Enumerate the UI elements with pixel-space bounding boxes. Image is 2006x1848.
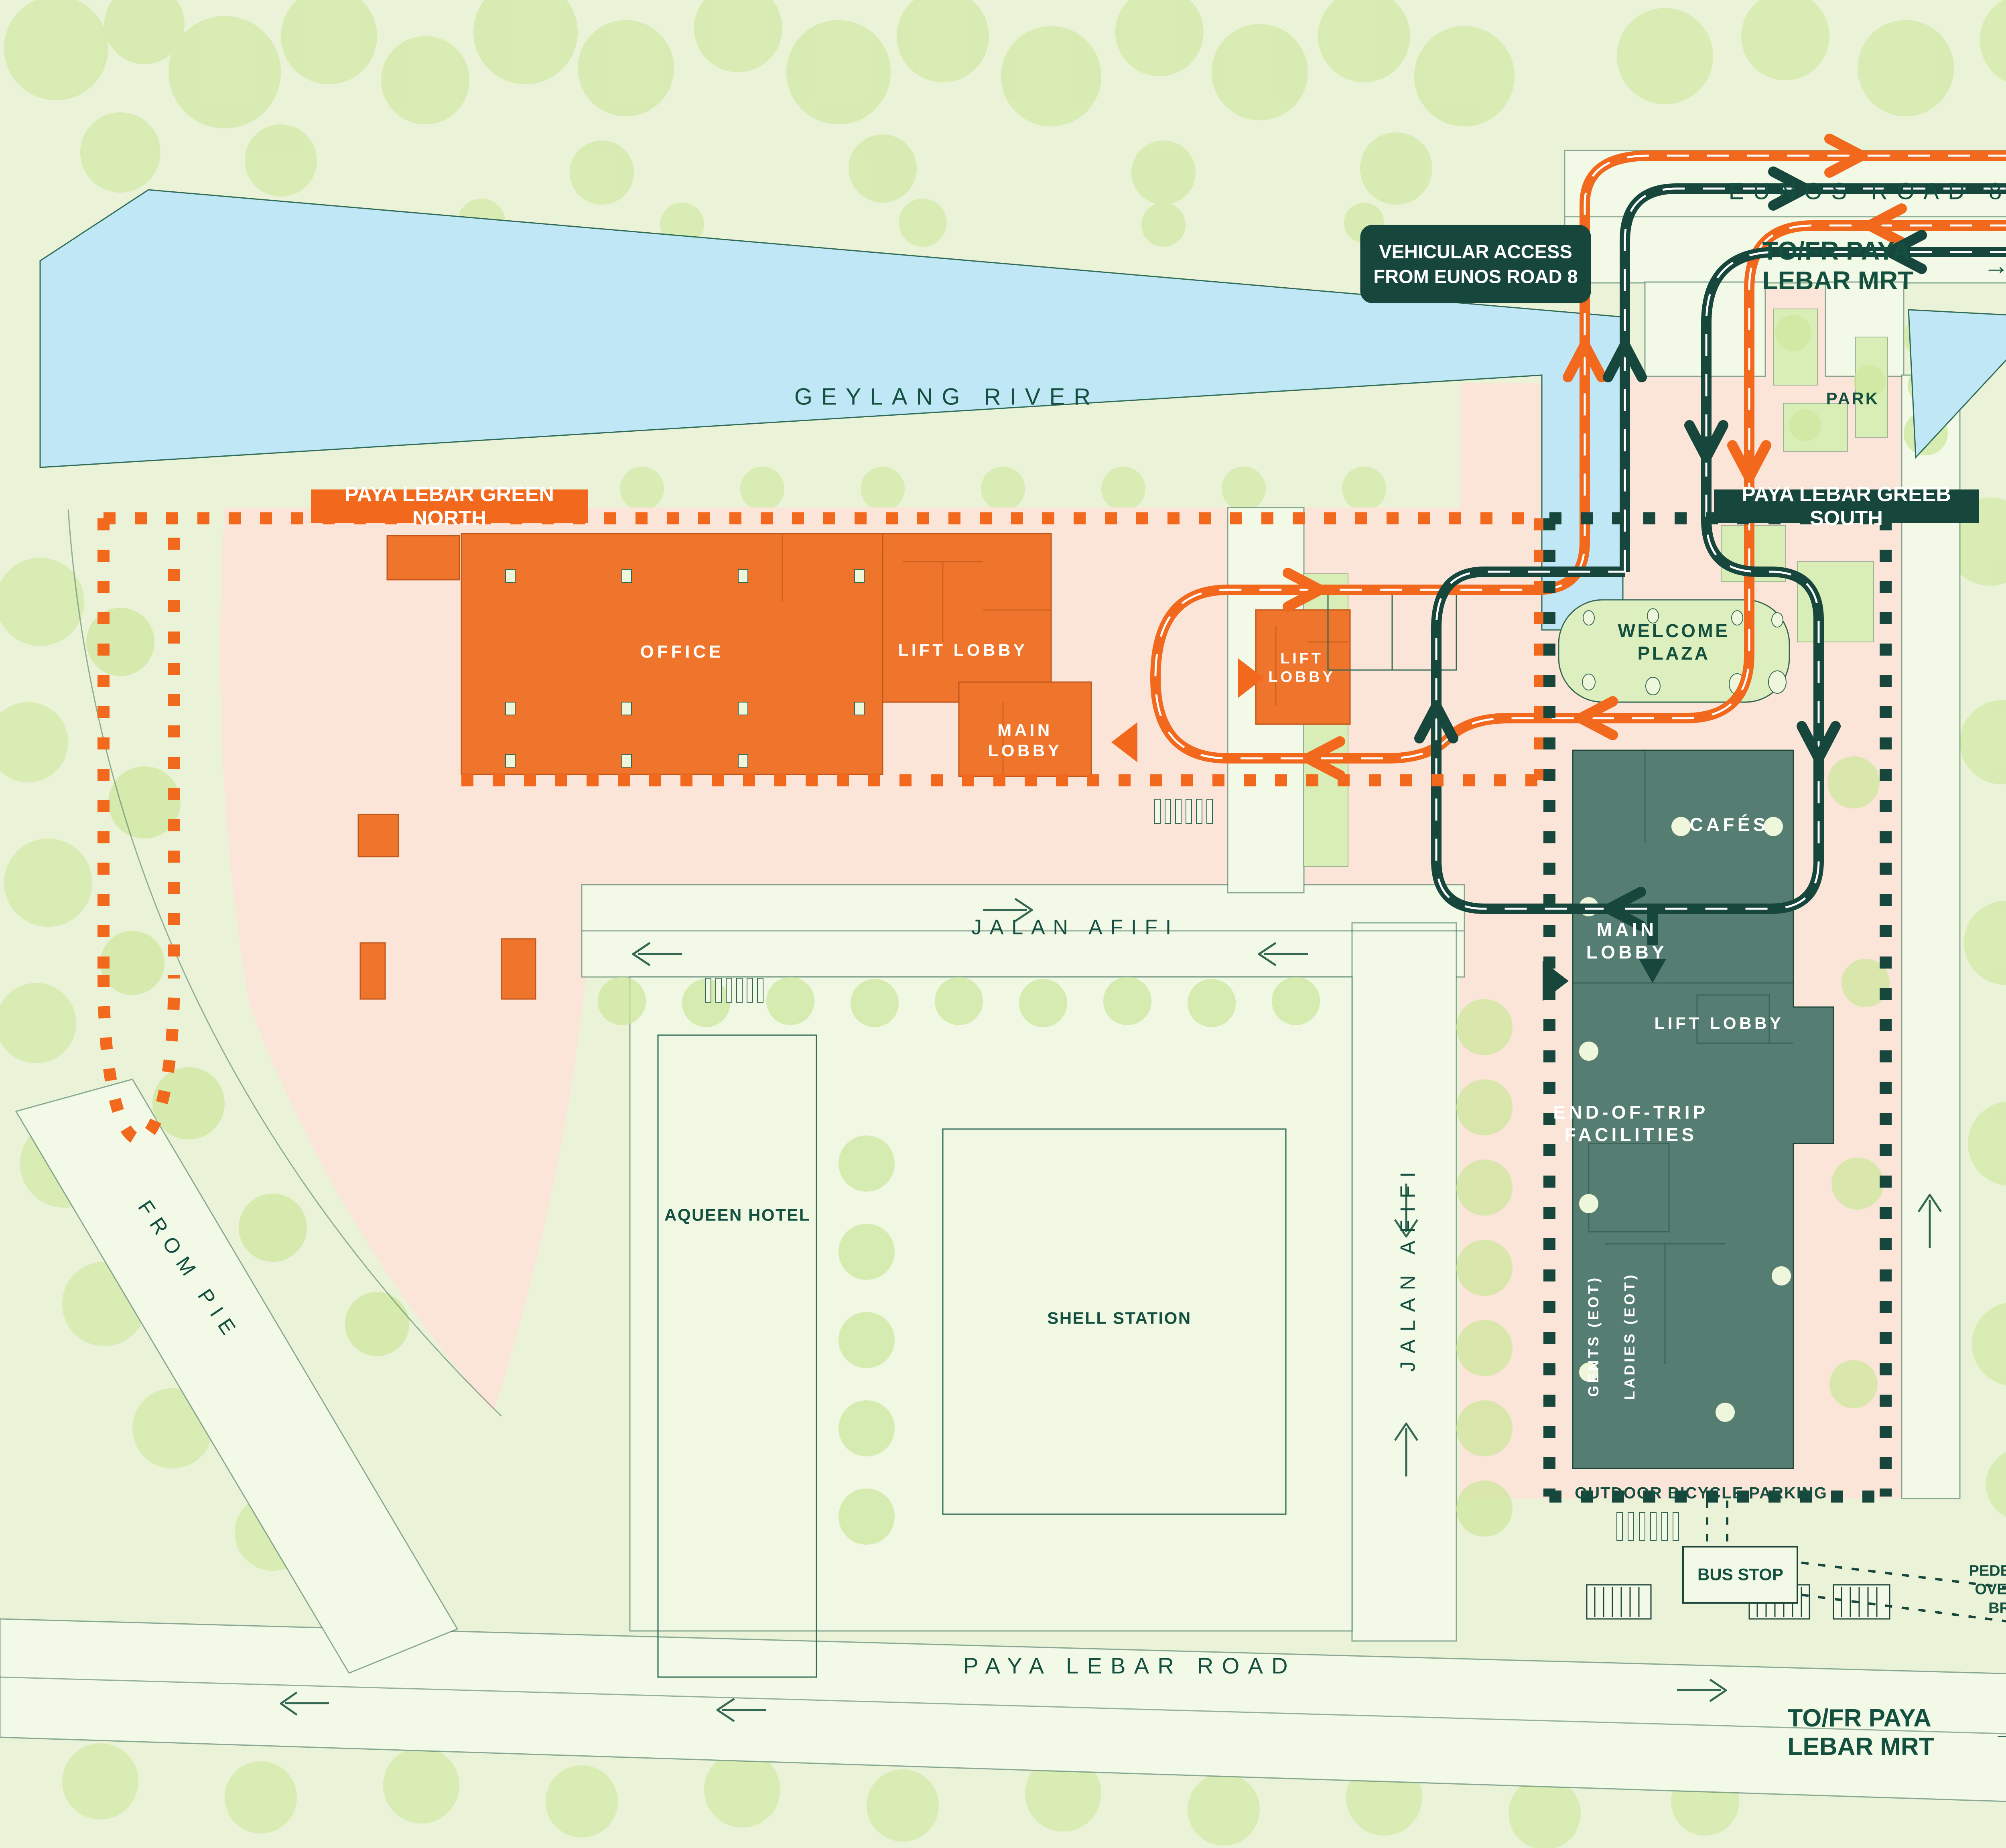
mrt-direction-top: TO/FR PAYA LEBAR MRT → bbox=[1762, 236, 2006, 295]
bus-stop-label: BUS STOP bbox=[1697, 1564, 1783, 1584]
gents-eot-label: GENTS (EOT) bbox=[1585, 1275, 1602, 1397]
north-parcel-badge: PAYA LEBAR GREEN NORTH bbox=[311, 489, 588, 523]
ladies-eot-label: LADIES (EOT) bbox=[1621, 1272, 1639, 1400]
vehicular-access-line1: VEHICULAR ACCESS bbox=[1379, 240, 1572, 264]
mrt-bottom-text: TO/FR PAYA LEBAR MRT bbox=[1788, 1704, 1982, 1761]
park-label: PARK bbox=[1826, 388, 1880, 408]
aqueen-hotel-label: AQUEEN HOTEL bbox=[664, 1204, 810, 1225]
bicycle-parking-label: OUTDOOR BICYCLE PARKING bbox=[1575, 1484, 1827, 1503]
south-parcel-badge-text: PAYA LEBAR GREEB SOUTH bbox=[1714, 482, 1979, 530]
south-main-lobby-label: MAIN LOBBY bbox=[1575, 918, 1679, 963]
mrt-top-text: TO/FR PAYA LEBAR MRT bbox=[1762, 236, 1973, 295]
jalan-afifi-label-vertical: JALAN AFIFI bbox=[1395, 1164, 1421, 1372]
overhead-bridge-label: PEDESTRIAN OVERHEAD BRIDGE bbox=[1958, 1562, 2006, 1617]
vehicular-access-line2: FROM EUNOS ROAD 8 bbox=[1373, 264, 1578, 288]
eot-facilities-label: END-OF-TRIP FACILITIES bbox=[1535, 1101, 1727, 1146]
north-lift-lobby-label: LIFT LOBBY bbox=[898, 640, 1028, 660]
cafes-label: CAFÉS bbox=[1689, 813, 1768, 836]
south-lift-lobby-label: LIFT LOBBY bbox=[1655, 1013, 1784, 1033]
south-parcel-badge: PAYA LEBAR GREEB SOUTH bbox=[1714, 489, 1979, 523]
paya-lebar-road-label: PAYA LEBAR ROAD bbox=[963, 1652, 1296, 1679]
vehicular-access-badge: VEHICULAR ACCESS FROM EUNOS ROAD 8 bbox=[1360, 225, 1591, 303]
mrt-direction-bottom: TO/FR PAYA LEBAR MRT → bbox=[1788, 1704, 2006, 1761]
central-lift-lobby-label: LIFT LOBBY bbox=[1268, 650, 1336, 687]
north-parcel-badge-text: PAYA LEBAR GREEN NORTH bbox=[311, 482, 588, 530]
eunos-road-label: EUNOS ROAD 8 bbox=[1729, 178, 2006, 206]
geylang-river-label: GEYLANG RIVER bbox=[794, 383, 1099, 412]
jalan-afifi-label-horizontal: JALAN AFIFI bbox=[971, 915, 1179, 940]
welcome-plaza-label: WELCOME PLAZA bbox=[1606, 619, 1742, 664]
right-arrow-icon: → bbox=[1993, 1718, 2006, 1747]
shell-station-label: SHELL STATION bbox=[1047, 1308, 1191, 1328]
right-arrow-icon: → bbox=[1984, 251, 2006, 280]
north-main-lobby-label: MAIN LOBBY bbox=[977, 720, 1073, 761]
site-map: EUNOS ROAD 8 TO/FR PAYA LEBAR MRT → VEHI… bbox=[0, 0, 2006, 1848]
office-label: OFFICE bbox=[640, 641, 724, 663]
